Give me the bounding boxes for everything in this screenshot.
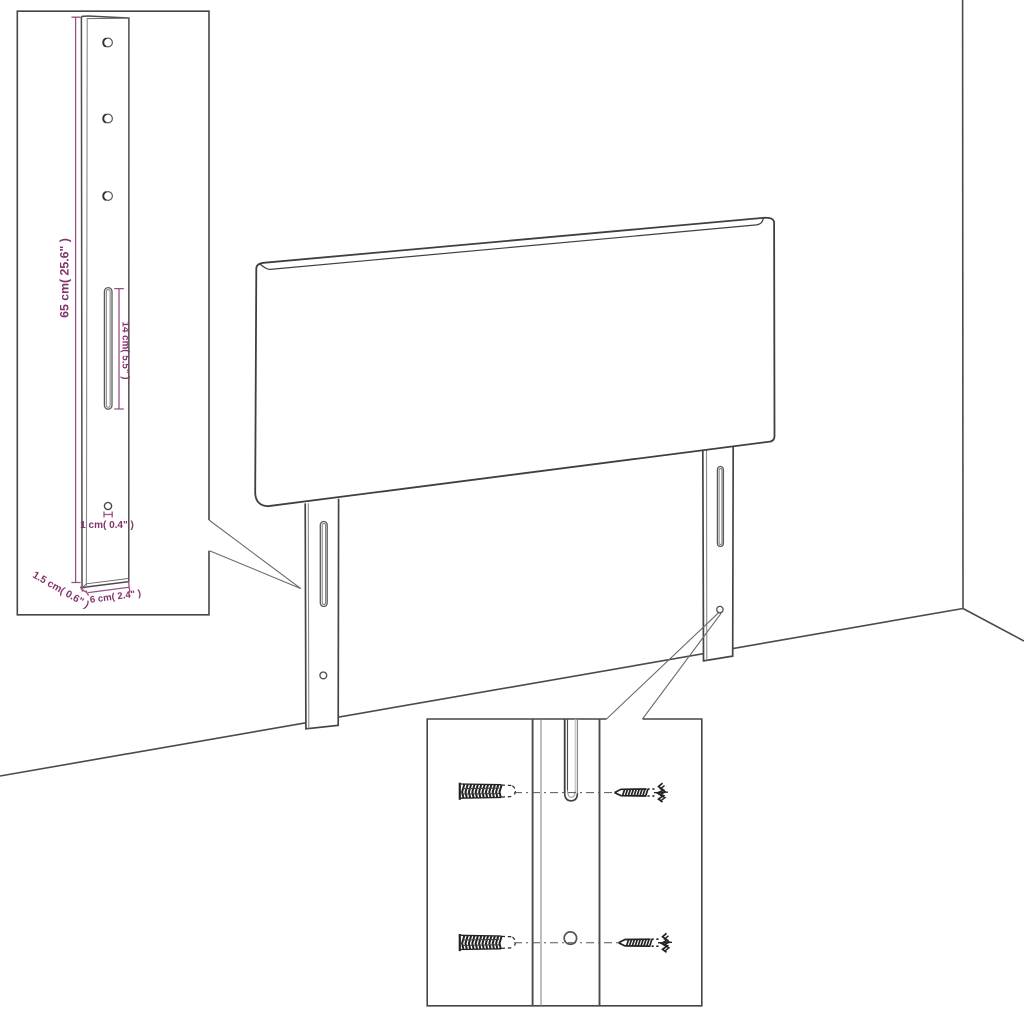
svg-text:14 cm( 5.5" ): 14 cm( 5.5" ) xyxy=(119,321,130,379)
svg-text:1 cm( 0.4" ): 1 cm( 0.4" ) xyxy=(80,520,134,531)
svg-text:65 cm( 25.6" ): 65 cm( 25.6" ) xyxy=(58,238,72,318)
